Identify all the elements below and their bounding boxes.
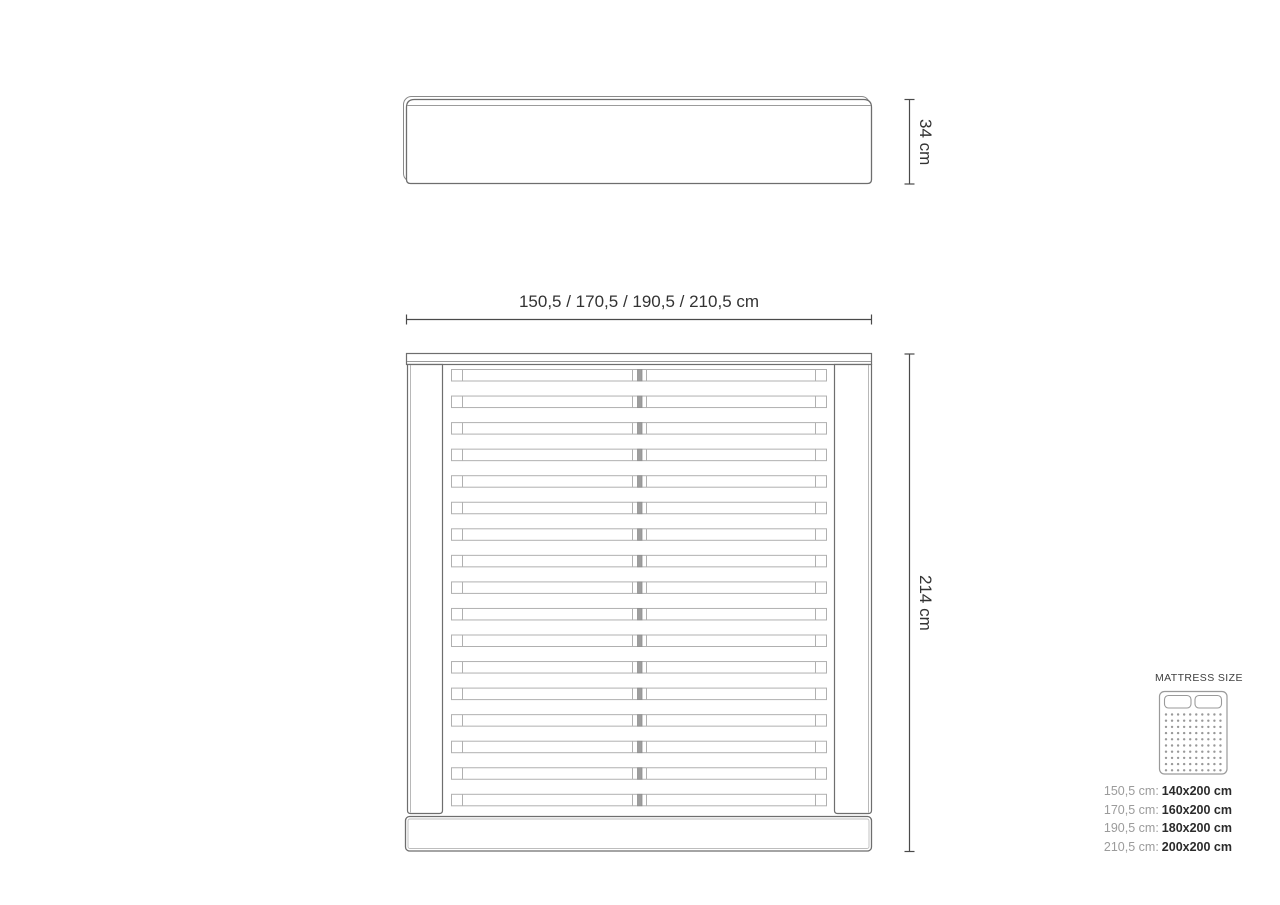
headboard-rail: [407, 354, 872, 365]
right-side-rail: [835, 365, 872, 814]
mattress-size-row: 210,5 cm:200x200 cm: [1095, 838, 1232, 857]
mattress-size-list: 150,5 cm:140x200 cm 170,5 cm:160x200 cm …: [1095, 782, 1232, 856]
slat: [452, 635, 827, 647]
slat: [452, 370, 827, 382]
slats-group: [452, 370, 827, 806]
slat: [452, 662, 827, 674]
pillow-right-icon: [1195, 696, 1222, 709]
mattress-size-title: MATTRESS SIZE: [1155, 672, 1233, 684]
slat: [452, 502, 827, 514]
frame-width-label: 170,5 cm:: [1104, 803, 1159, 817]
slat: [452, 608, 827, 620]
headboard-panel-outline: [407, 100, 872, 184]
slat: [452, 582, 827, 594]
bed-frame-top-view: [406, 354, 872, 852]
width-dimension-label: 150,5 / 170,5 / 190,5 / 210,5 cm: [406, 292, 872, 312]
mattress-size-row: 170,5 cm:160x200 cm: [1095, 801, 1232, 820]
mattress-size-value: 180x200 cm: [1162, 821, 1232, 835]
slat: [452, 688, 827, 700]
slat: [452, 555, 827, 567]
mattress-size-value: 160x200 cm: [1162, 803, 1232, 817]
pillow-left-icon: [1165, 696, 1192, 709]
left-side-rail: [408, 365, 443, 814]
frame-width-label: 190,5 cm:: [1104, 821, 1159, 835]
slat: [452, 768, 827, 780]
footboard-rail: [406, 817, 872, 852]
bed-frame-drawing: [0, 0, 1280, 905]
slat: [452, 423, 827, 435]
technical-drawing-canvas: 150,5 / 170,5 / 190,5 / 210,5 cm 34 cm 2…: [0, 0, 1280, 905]
frame-width-label: 210,5 cm:: [1104, 840, 1159, 854]
width-dimension-line: [407, 315, 872, 325]
slat: [452, 529, 827, 541]
headboard-side-view: [404, 97, 872, 184]
headboard-height-label: 34 cm: [913, 99, 937, 185]
frame-length-label: 214 cm: [913, 353, 937, 852]
slat: [452, 741, 827, 753]
mattress-top-view-icon: [1160, 692, 1228, 775]
slat: [452, 715, 827, 727]
slat: [452, 396, 827, 408]
mattress-size-row: 190,5 cm:180x200 cm: [1095, 819, 1232, 838]
mattress-size-value: 200x200 cm: [1162, 840, 1232, 854]
slat: [452, 476, 827, 488]
mattress-size-value: 140x200 cm: [1162, 784, 1232, 798]
frame-width-label: 150,5 cm:: [1104, 784, 1159, 798]
mattress-size-row: 150,5 cm:140x200 cm: [1095, 782, 1232, 801]
slat: [452, 794, 827, 806]
slat: [452, 449, 827, 461]
